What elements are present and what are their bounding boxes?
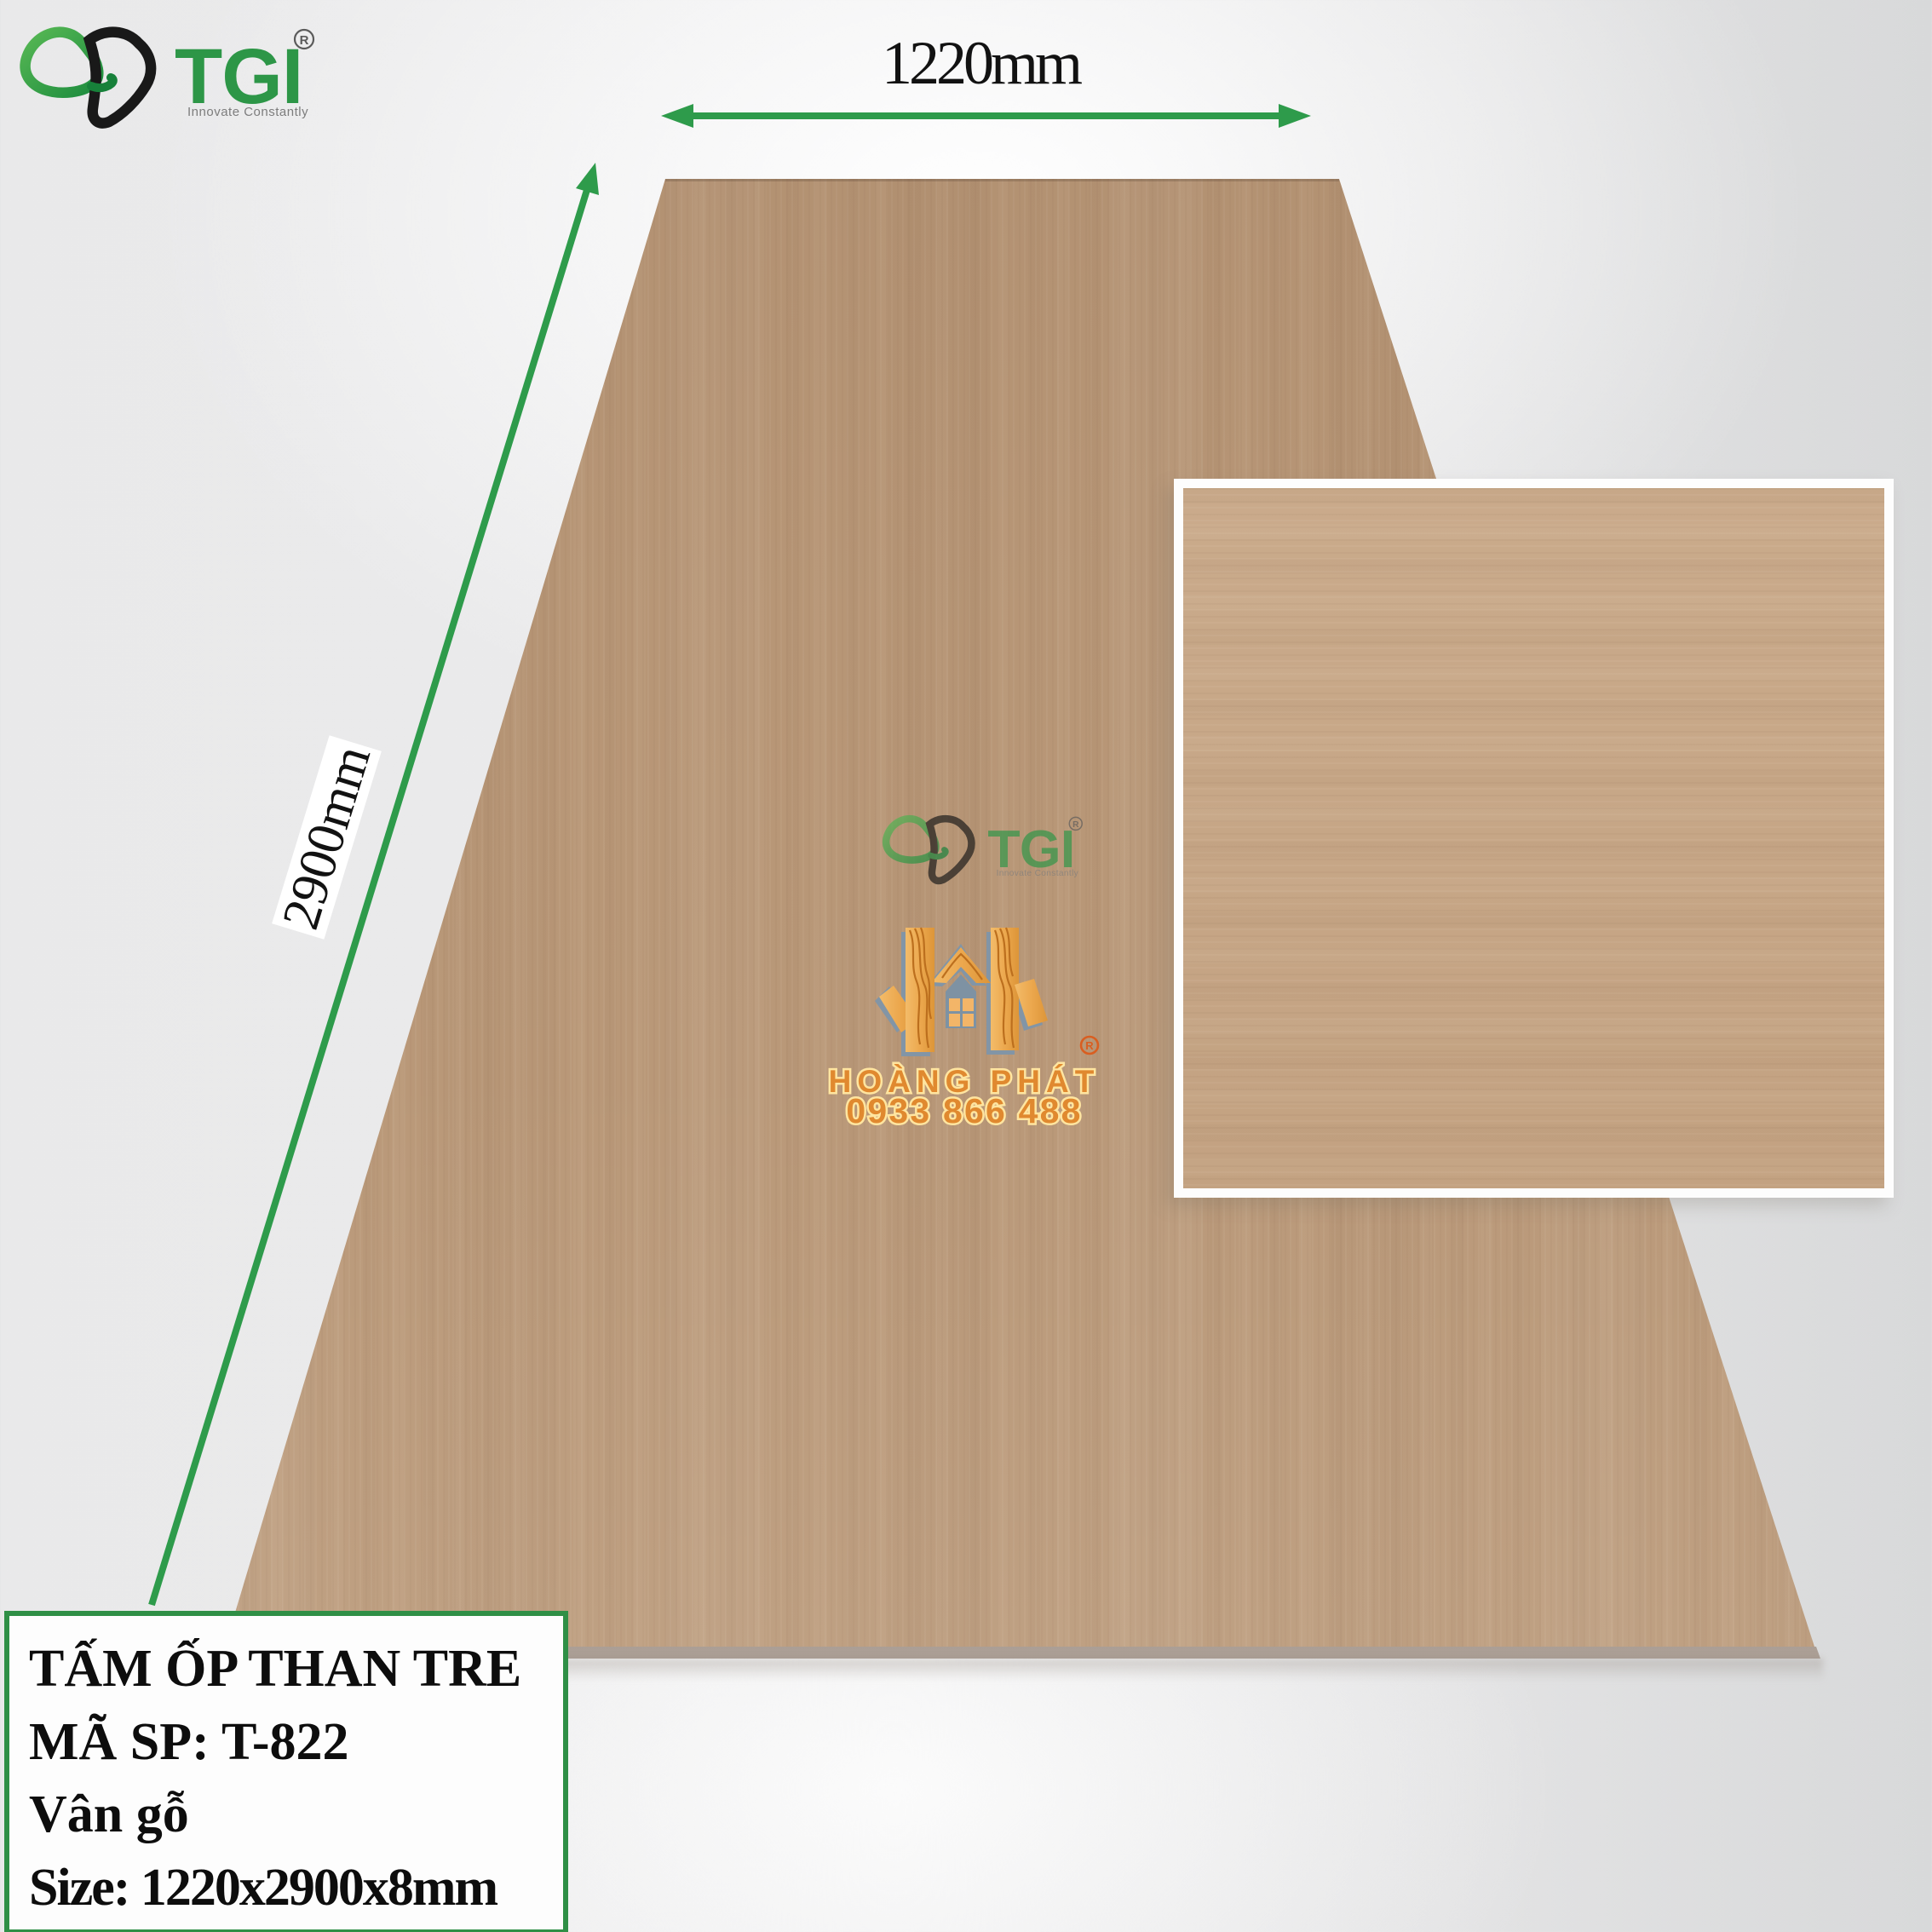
svg-text:0933 866 488: 0933 866 488 — [846, 1091, 1082, 1130]
svg-text:R: R — [1085, 1039, 1094, 1052]
